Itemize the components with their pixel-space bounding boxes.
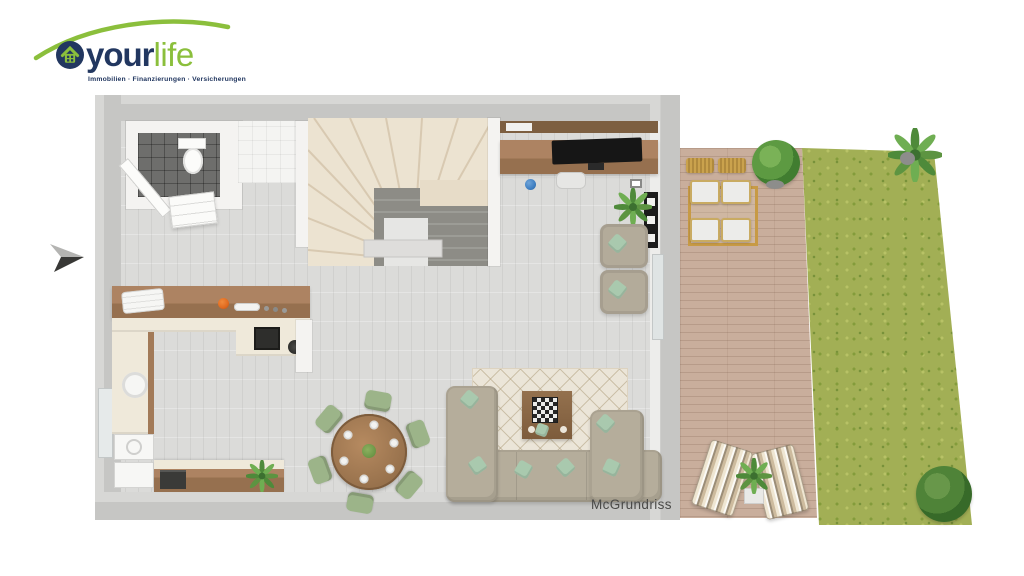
logo-house-icon (56, 41, 84, 69)
living-plant-icon (614, 188, 652, 226)
desk-frame (630, 179, 642, 188)
desk-monitor (552, 137, 643, 164)
garden-corner-bush (916, 466, 972, 522)
bush-pot (766, 180, 784, 189)
kitchen-plant-icon (246, 460, 278, 492)
lounger-plant-icon (736, 458, 772, 494)
toilet (183, 148, 203, 174)
cushion-divider (516, 452, 517, 500)
watermark-label: McGrundriss (591, 497, 672, 512)
kettle (218, 298, 229, 309)
hall-stair-wall (296, 121, 308, 247)
kitchen-round-sink (122, 372, 148, 398)
dining-plate (340, 457, 349, 466)
brand-life: life (154, 36, 194, 73)
oven (160, 470, 186, 489)
logo: yourlife Immobilien · Finanzierungen · V… (30, 14, 240, 88)
dining-plate (344, 431, 353, 440)
spice-jar (273, 307, 278, 312)
aloe-plant-icon (888, 128, 942, 182)
sink-basin (126, 439, 142, 455)
table-centerpiece (362, 444, 376, 458)
chessboard (532, 397, 558, 423)
logo-tagline: Immobilien · Finanzierungen · Versicheru… (88, 76, 246, 83)
outdoor-chair (686, 158, 714, 173)
floorplan-page: yourlife Immobilien · Finanzierungen · V… (0, 0, 1024, 576)
cushion-divider (586, 452, 587, 500)
dining-plate (386, 465, 395, 474)
bread-box (121, 288, 165, 314)
staircase (308, 118, 490, 266)
stair-office-wall (488, 118, 500, 266)
monitor-stand (588, 163, 604, 170)
paper-roll (234, 303, 260, 311)
kitchen-sink-unit (114, 434, 154, 460)
cooktop (254, 327, 280, 350)
entrance-arrow-icon (46, 238, 86, 276)
outdoor-chair (718, 158, 746, 173)
dining-plate (360, 475, 369, 484)
outdoor-chair-cushion (721, 180, 751, 204)
brand-your: your (86, 36, 154, 73)
kitchen-hall-wall-stub (296, 320, 312, 372)
table-decor (560, 426, 567, 433)
dishwasher (114, 462, 154, 488)
outdoor-chair-cushion (690, 218, 720, 242)
brand-wordmark: yourlife (86, 36, 194, 74)
aloe-pot (900, 152, 915, 165)
outdoor-chair-cushion (721, 218, 751, 242)
terrace-glass-door (652, 254, 664, 340)
shelf-books (506, 123, 532, 131)
outdoor-chair-cushion (690, 180, 720, 204)
kitchen-left-worktop-edge (148, 332, 154, 434)
dining-plate (390, 439, 399, 448)
desk-chair (556, 172, 586, 189)
pantry-floor (238, 121, 298, 183)
shelf-cube (647, 234, 655, 242)
spice-jar (264, 306, 269, 311)
dining-plate (370, 421, 379, 430)
desk-globe (525, 179, 536, 190)
kitchen-window (98, 388, 113, 458)
spice-jar (282, 308, 287, 313)
bathroom-dresser (168, 191, 218, 228)
